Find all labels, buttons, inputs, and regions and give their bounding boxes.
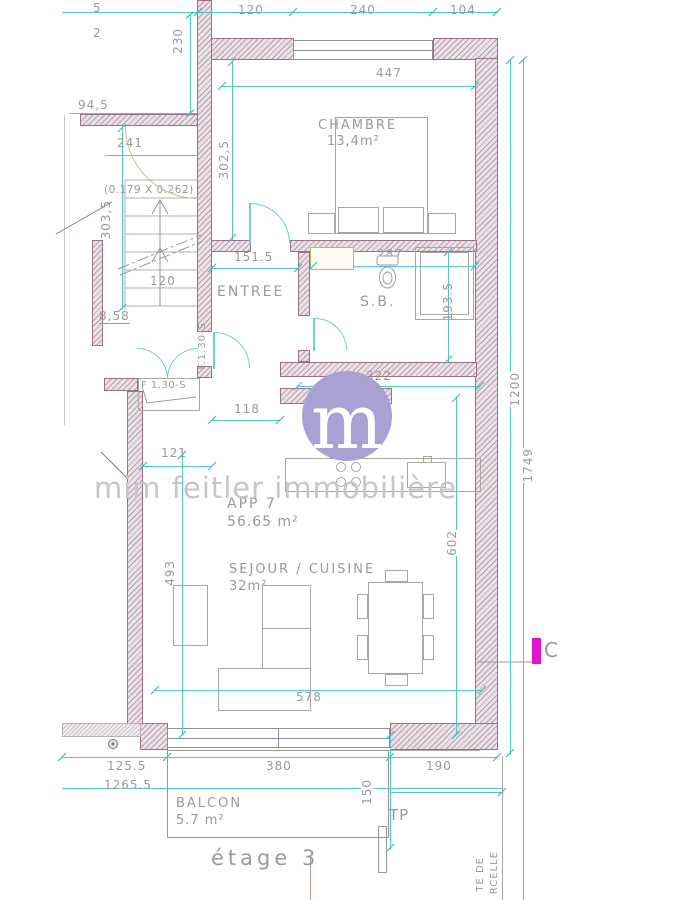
wall-west-lower <box>127 391 143 730</box>
bathroom-sink <box>310 247 354 270</box>
window-north <box>293 40 433 60</box>
chair <box>357 635 368 660</box>
dim-label-120-stair: 120 <box>150 275 176 287</box>
wall-north-left <box>211 38 294 60</box>
floor-plan-canvas: 5 2 120 240 104 230 447 CHAMBRE 13,4m² 9… <box>0 0 682 900</box>
parcel-boundary-line <box>502 757 503 900</box>
door-arc-landing-left <box>137 348 168 379</box>
door-arc-entry <box>214 332 250 368</box>
room-label-entree: ENTREE <box>217 285 284 299</box>
side-table <box>173 585 208 646</box>
chair <box>385 674 408 686</box>
wall-left-upper <box>80 114 198 126</box>
dim-label-150: 150 <box>361 779 373 805</box>
dim-label-493: 493 <box>164 560 176 586</box>
wall-west-upper <box>197 0 212 332</box>
dim-label-120: 120 <box>238 4 264 16</box>
dim-line-1200 <box>510 60 511 755</box>
tp-marker: TP <box>389 808 409 823</box>
dim-line-151 <box>212 268 298 269</box>
chair <box>385 570 408 582</box>
dim-line-303 <box>122 128 123 310</box>
wall-east <box>475 58 498 732</box>
door-arc-landing-right <box>167 348 198 379</box>
room-label-sb: S.B. <box>360 295 395 309</box>
logo-letter: m <box>311 377 383 466</box>
dim-line-right-ext <box>390 792 502 793</box>
sofa-chaise <box>218 668 311 711</box>
door-leaf-sb <box>313 318 315 351</box>
dim-line-top <box>62 12 498 13</box>
chair <box>423 594 434 619</box>
window-glass-line <box>294 50 432 51</box>
watermark: mim feitler immobilière <box>94 471 457 505</box>
dim-label-447: 447 <box>376 67 402 79</box>
dim-label-8-58: 8,58 <box>99 310 130 324</box>
dim-line-94 <box>70 113 197 114</box>
dim-line-230 <box>190 14 191 114</box>
wall-neighbor <box>62 723 141 737</box>
dim-line-bottom-1 <box>62 757 498 758</box>
dining-table <box>368 582 423 674</box>
wall-sb-west-lower <box>298 350 310 362</box>
nightstand-right <box>428 213 456 234</box>
duct-shaft <box>138 378 200 411</box>
dim-label-303-5: 303,5 <box>100 200 112 239</box>
bed-pillow-left <box>338 207 379 233</box>
dim-line-302 <box>232 62 233 240</box>
dim-line-602 <box>456 398 457 735</box>
dim-label-94-5: 94,5 <box>78 99 109 111</box>
window-south <box>167 728 390 748</box>
bed-pillow-right <box>383 207 424 233</box>
room-label-sejour: SEJOUR / CUISINE <box>229 563 375 576</box>
wall-landing-south <box>104 378 138 391</box>
sofa-seat <box>262 585 311 629</box>
chair <box>423 635 434 660</box>
dim-label-302-5: 302,5 <box>218 140 230 179</box>
dim-label-fragment-2: 2 <box>93 27 102 39</box>
neighbor-edge-left <box>64 115 65 425</box>
parcel-text-2: RCELLE <box>490 851 500 894</box>
tp-pipe <box>378 826 387 873</box>
dim-label-118: 118 <box>234 403 260 415</box>
door-leaf-entry <box>213 332 215 369</box>
logo-mark: m <box>302 371 392 461</box>
door-code-vertical: F.1.30-S <box>198 322 208 370</box>
door-leaf-chambre <box>249 203 251 244</box>
chair <box>357 594 368 619</box>
wall-north-right <box>433 38 498 60</box>
dim-label-1265-5: 1265.5 <box>104 779 152 791</box>
apartment-area: 56.65 m² <box>227 515 299 529</box>
room-area-balcon: 5.7 m² <box>176 814 225 827</box>
column-symbol <box>109 740 118 749</box>
wall-south-right <box>390 723 498 750</box>
kitchen-faucet <box>423 456 432 463</box>
dim-label-121: 121 <box>161 447 187 459</box>
section-marker-flag <box>532 638 541 664</box>
dim-label-1749: 1749 <box>522 448 534 483</box>
dim-label-240: 240 <box>350 4 376 16</box>
shower-inner <box>420 252 469 315</box>
room-label-balcon: BALCON <box>176 797 242 810</box>
sofa-seat <box>262 628 311 669</box>
dim-label-602: 602 <box>446 530 458 556</box>
dim-label-1200: 1200 <box>509 372 521 407</box>
wall-south-left <box>140 723 168 750</box>
dim-label-190: 190 <box>426 760 452 772</box>
floor-label: étage 3 <box>211 848 319 869</box>
dim-label-125-5: 125.5 <box>107 760 146 772</box>
stair-direction-arrow <box>118 200 203 306</box>
dim-label-230: 230 <box>172 28 184 54</box>
parcel-text-1: TE DE <box>476 857 486 892</box>
dim-label-287: 287 <box>377 248 403 260</box>
dim-line-447 <box>222 86 475 87</box>
section-marker-label: C <box>544 640 559 660</box>
wall-landing-west <box>92 240 103 346</box>
door-arc-sb <box>315 318 347 350</box>
dim-label-fragment-top: 5 <box>93 2 102 14</box>
nightstand-left <box>308 213 335 234</box>
staircase <box>125 180 197 310</box>
balcony-edge-extension <box>389 750 480 751</box>
door-arc-chambre <box>250 203 290 243</box>
dim-line-121 <box>143 466 212 467</box>
dim-label-151-5: 151.5 <box>234 251 273 263</box>
dim-line-118 <box>212 420 280 421</box>
wall-sb-west-upper <box>298 252 310 316</box>
dim-label-104: 104 <box>450 4 476 16</box>
dim-label-380: 380 <box>266 760 292 772</box>
window-mullion <box>278 729 279 747</box>
